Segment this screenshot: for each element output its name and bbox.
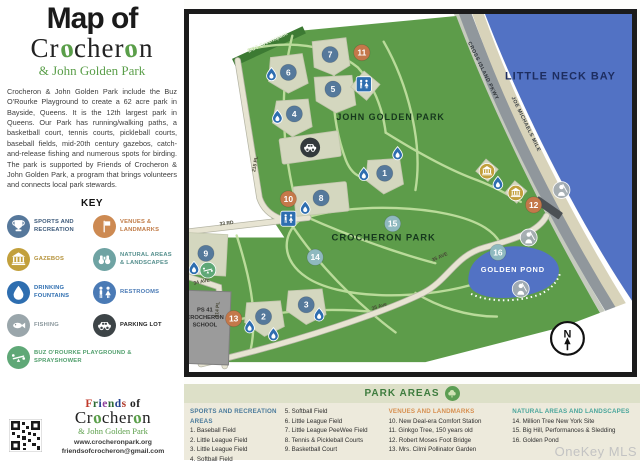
map-marker-6: 6: [280, 64, 296, 80]
svg-text:8: 8: [319, 193, 324, 203]
map-marker-11: 11: [354, 44, 370, 60]
qr-code: [9, 419, 42, 452]
map-marker-7: 7: [322, 46, 338, 62]
title-line3: & John Golden Park: [7, 63, 177, 79]
tree-icon: [445, 386, 460, 401]
website-url: www.crocheronpark.org: [42, 438, 184, 447]
legend-item: 6. Little League Field: [285, 417, 385, 427]
map-marker-15: 15: [384, 216, 400, 232]
sidebar: Map of Crocheron & John Golden Park Croc…: [0, 0, 184, 460]
svg-text:2: 2: [261, 312, 266, 322]
key-item-label: DRINKING FOUNTAINS: [34, 285, 91, 299]
map-marker-3: 3: [298, 297, 314, 313]
legend-item: 7. Little League PeeWee Field: [285, 426, 385, 436]
key-item: PARKING LOT: [93, 313, 177, 339]
legend-column-header: VENUES AND LANDMARKS: [389, 407, 509, 417]
svg-text:14: 14: [310, 252, 320, 262]
svg-text:11: 11: [357, 48, 366, 58]
legend-column: 5. Softball Field6. Little League Field7…: [285, 407, 389, 465]
water-drop-icon: [7, 281, 30, 304]
svg-text:4: 4: [292, 109, 297, 119]
svg-text:3: 3: [304, 300, 309, 310]
key-list: SPORTS AND RECREATION VENUES & LANDMARKS…: [7, 214, 177, 339]
sidebar-footer: Friends of Crocheron & John Golden Park …: [0, 398, 184, 456]
key-item: GAZEBOS: [7, 247, 91, 273]
park-map: N JOHN GOLDEN PARKCROCHERON PARKLITTLE N…: [184, 9, 637, 377]
legend-item: 10. New Deal-era Comfort Station: [389, 417, 509, 427]
map-parking-icon: [300, 138, 320, 158]
friends-logo-line3: & John Golden Park: [42, 426, 184, 436]
key-item-label: NATURAL AREAS & LANDSCAPES: [120, 252, 177, 266]
map-label: GOLDEN POND: [481, 265, 545, 274]
svg-text:6: 6: [286, 67, 291, 77]
restroom-icon: [93, 281, 116, 304]
title-line2: Crocheron: [7, 35, 177, 62]
map-gazebo-icon: [508, 185, 523, 200]
map-label: CROCHERON PARK: [332, 231, 436, 242]
key-item: BUZ O'ROURKE PLAYGROUND & SPRAYSHOWER: [7, 345, 177, 371]
legend-item: 13. Mrs. Cilmi Pollinator Garden: [389, 445, 509, 455]
key-item-label: SPORTS AND RECREATION: [34, 219, 91, 233]
svg-text:5: 5: [331, 84, 336, 94]
map-restroom-icon: [281, 211, 296, 226]
key-item-label: PARKING LOT: [120, 322, 162, 329]
map-marker-14: 14: [307, 249, 323, 265]
svg-text:1: 1: [382, 168, 387, 178]
key-heading: KEY: [7, 198, 177, 209]
legend-item: 15. Big Hill, Performances & Sledding: [512, 426, 634, 436]
legend-item: 12. Robert Moses Foot Bridge: [389, 436, 509, 446]
key-item-label: BUZ O'ROURKE PLAYGROUND & SPRAYSHOWER: [34, 350, 177, 364]
legend-column: VENUES AND LANDMARKS10. New Deal-era Com…: [389, 407, 513, 465]
legend-item: 8. Tennis & Pickleball Courts: [285, 436, 385, 446]
key-item: SPORTS AND RECREATION: [7, 214, 91, 240]
contact-email: friendsofcrocheron@gmail.com: [42, 447, 184, 456]
legend-heading-band: PARK AREAS: [184, 384, 640, 403]
key-item: NATURAL AREAS & LANDSCAPES: [93, 247, 177, 273]
key-list-extra: BUZ O'ROURKE PLAYGROUND & SPRAYSHOWER: [7, 345, 177, 371]
legend-item: 3. Little League Field: [190, 445, 281, 455]
compass: N: [551, 322, 584, 355]
legend-column: SPORTS AND RECREATION AREAS1. Baseball F…: [190, 407, 285, 465]
friends-logo: Friends of Crocheron & John Golden Park …: [42, 398, 184, 456]
map-marker-5: 5: [325, 81, 341, 97]
key-item-label: VENUES & LANDMARKS: [120, 219, 177, 233]
svg-text:13: 13: [229, 314, 239, 324]
map-marker-13: 13: [226, 310, 242, 326]
car-icon: [93, 314, 116, 337]
key-item-label: RESTROOMS: [120, 289, 159, 296]
legend-item: 11. Ginkgo Tree, 150 years old: [389, 426, 509, 436]
title-line1: Map of: [7, 4, 177, 34]
legend-item: 5. Softball Field: [285, 407, 385, 417]
svg-text:10: 10: [284, 194, 294, 204]
trophy-icon: [7, 215, 30, 238]
map-marker-9: 9: [198, 245, 214, 261]
svg-text:7: 7: [328, 50, 333, 60]
park-description: Crocheron & John Golden Park include the…: [7, 87, 177, 191]
map-playground-icon: [200, 262, 216, 278]
map-gazebo-icon: [479, 164, 494, 179]
svg-text:12: 12: [529, 200, 539, 210]
map-marker-1: 1: [377, 165, 393, 181]
key-item-label: GAZEBOS: [34, 256, 64, 263]
map-fisher-icon: [520, 229, 537, 246]
friends-logo-line2: Crocheron: [42, 410, 184, 426]
legend-item: 1. Baseball Field: [190, 426, 281, 436]
map-marker-4: 4: [286, 106, 302, 122]
legend-item: 2. Little League Field: [190, 436, 281, 446]
map-marker-16: 16: [490, 244, 506, 260]
legend-item: 9. Basketball Court: [285, 445, 385, 455]
map-label: LITTLE NECK BAY: [505, 70, 616, 82]
svg-text:9: 9: [204, 248, 209, 258]
key-item: VENUES & LANDMARKS: [93, 214, 177, 240]
map-fisher-icon: [553, 182, 570, 199]
watermark: OneKey MLS: [555, 444, 637, 459]
map-fisher-icon: [512, 281, 529, 298]
map-marker-2: 2: [255, 309, 271, 325]
key-item: RESTROOMS: [93, 280, 177, 306]
svg-text:16: 16: [493, 247, 503, 257]
key-item-label: FISHING: [34, 322, 59, 329]
fish-icon: [7, 314, 30, 337]
legend-item: 14. Million Tree New York Site: [512, 417, 634, 427]
flag-icon: [93, 215, 116, 238]
map-restroom-icon: [356, 77, 371, 92]
gazebo-icon: [7, 248, 30, 271]
playground-icon: [7, 346, 30, 369]
legend-column-header: NATURAL AREAS AND LANDSCAPES: [512, 407, 634, 417]
poster: Map of Crocheron & John Golden Park Croc…: [0, 0, 640, 460]
legend-heading: PARK AREAS: [364, 388, 439, 399]
map-marker-10: 10: [280, 191, 296, 207]
map-marker-8: 8: [313, 190, 329, 206]
map-label: JOHN GOLDEN PARK: [336, 112, 444, 122]
legend-column-header: SPORTS AND RECREATION AREAS: [190, 407, 281, 426]
map-marker-12: 12: [526, 197, 542, 213]
svg-text:15: 15: [388, 219, 398, 229]
binoculars-icon: [93, 248, 116, 271]
key-item: FISHING: [7, 313, 91, 339]
key-item: DRINKING FOUNTAINS: [7, 280, 91, 306]
